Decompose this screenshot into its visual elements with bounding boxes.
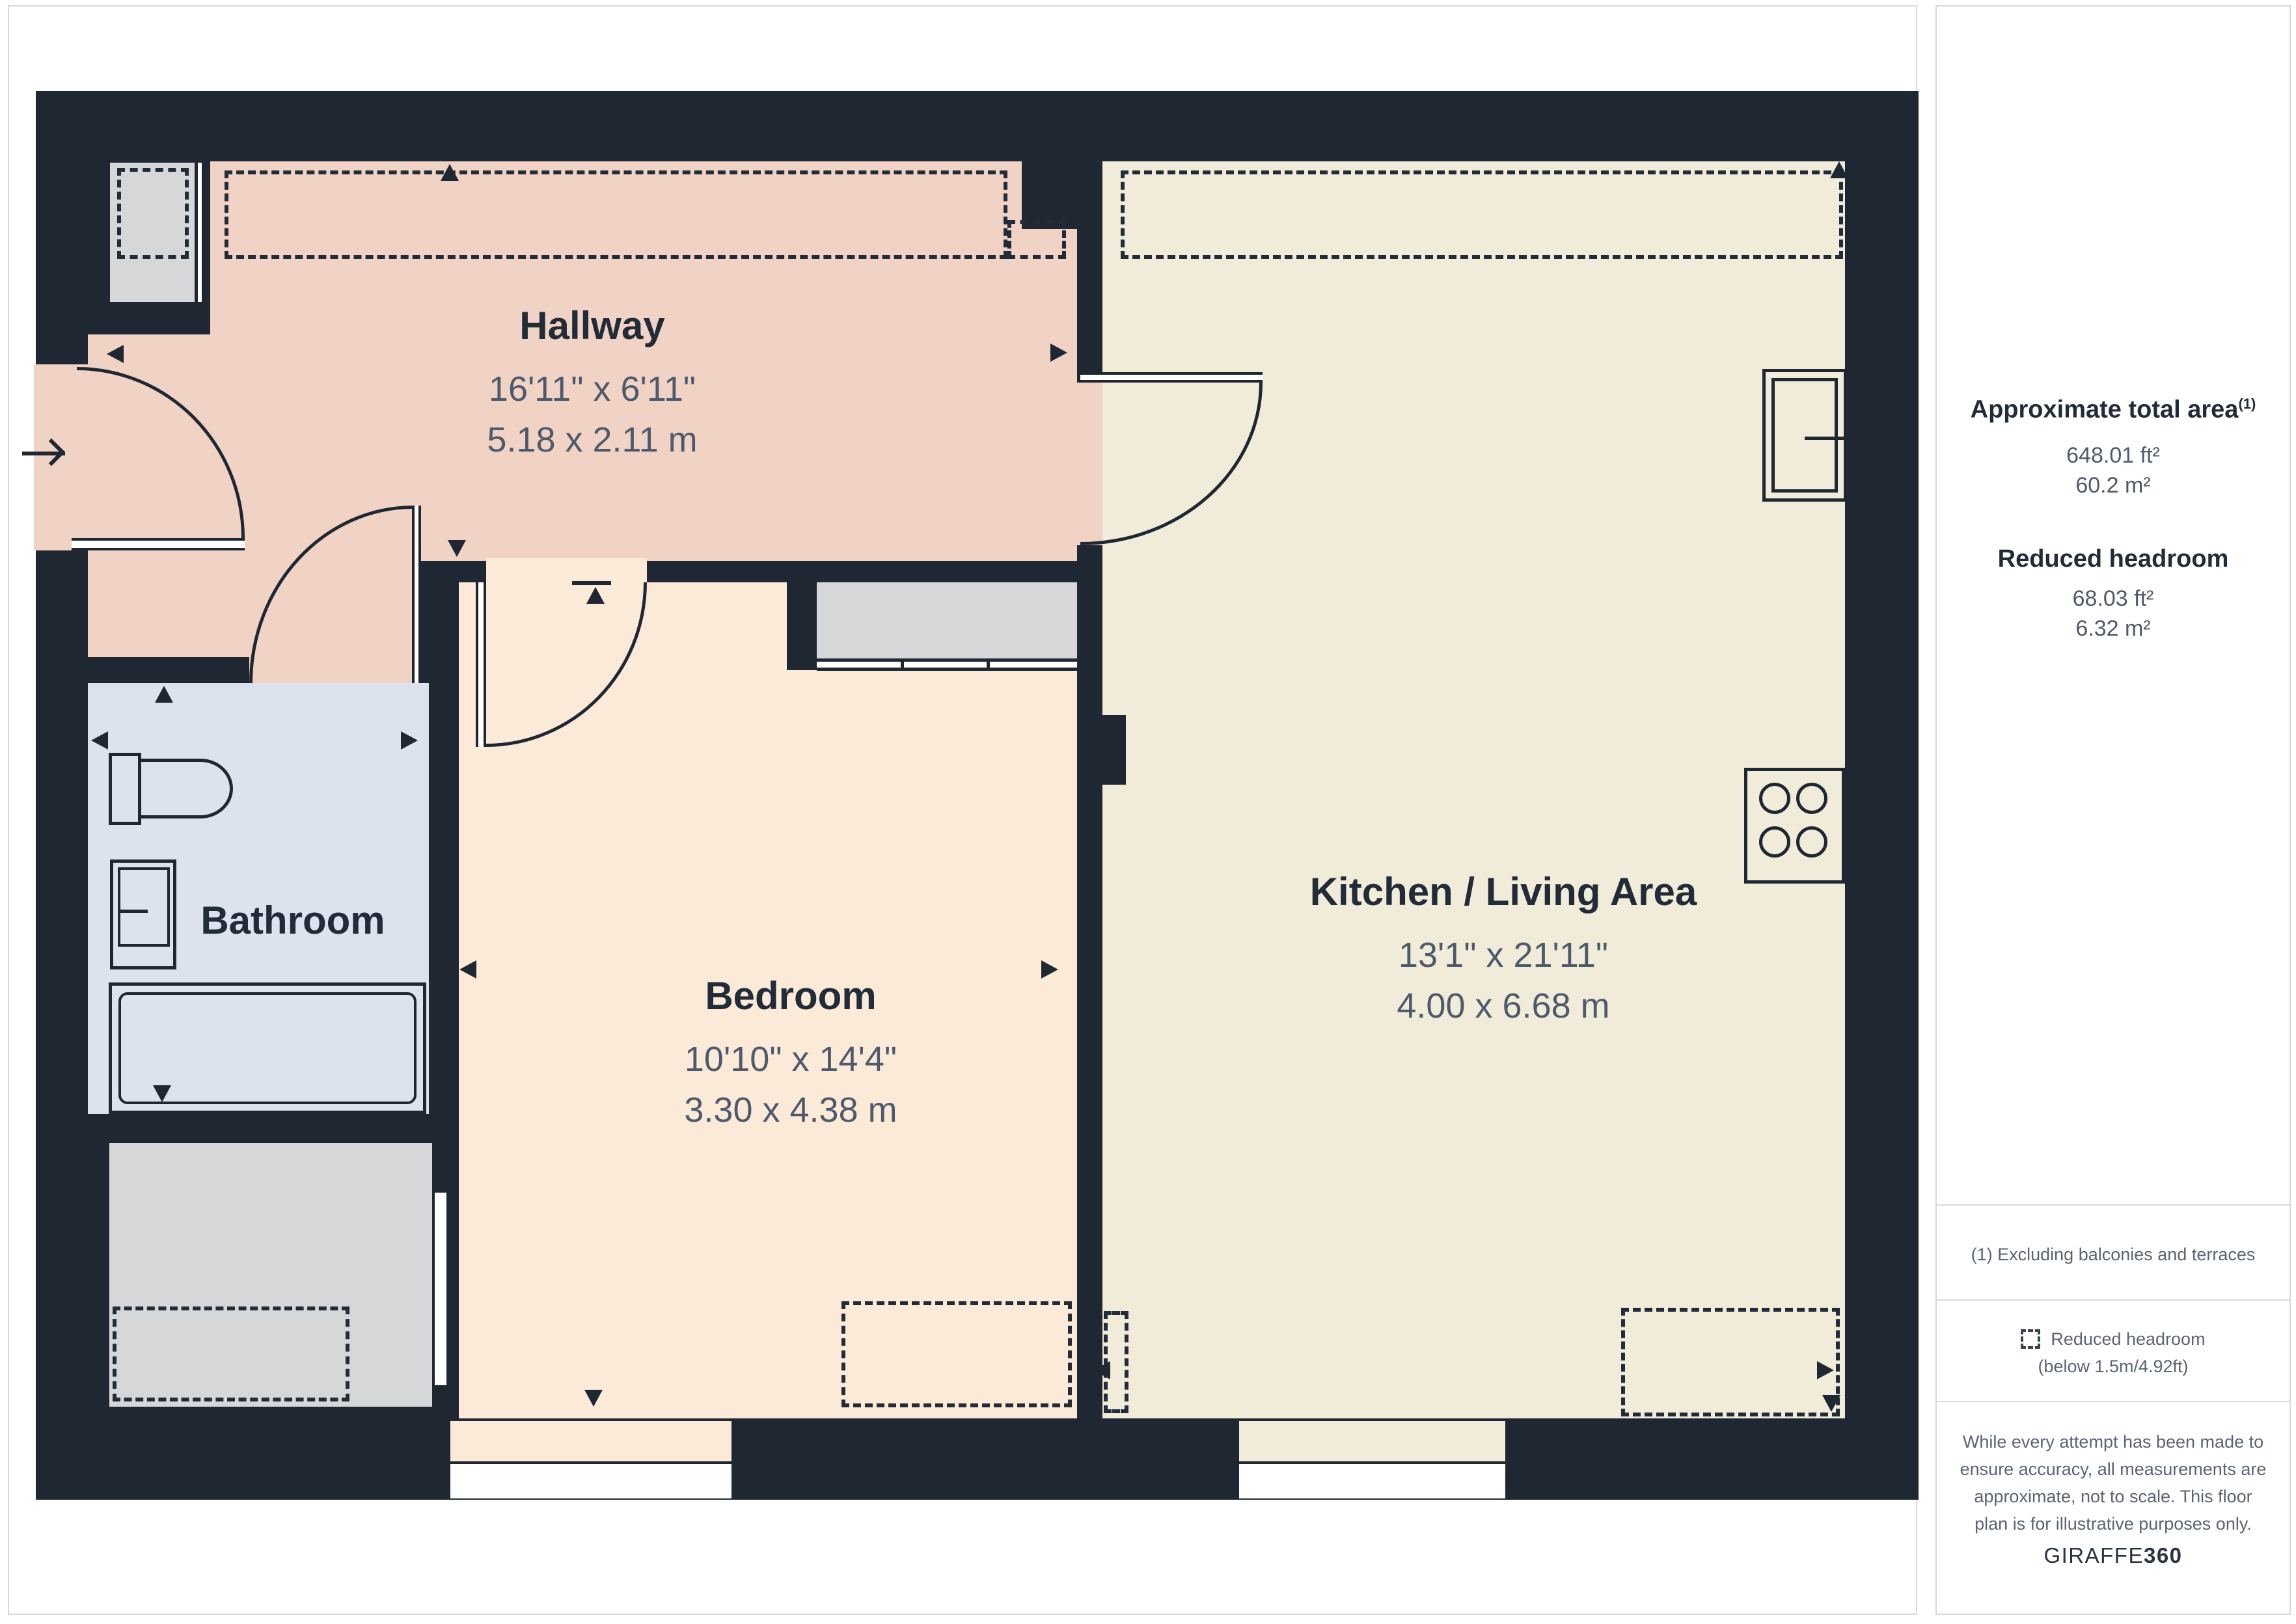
kitchen-dim-arrow-right-icon [1817,1361,1834,1379]
closet-slide-line-bottom [817,668,1077,671]
kitchen-bay-window [1239,1464,1505,1498]
legend-row: Reduced headroom [1935,1326,2291,1352]
storage-door-channel [432,1193,449,1385]
reduced-headroom-legend-icon [2021,1329,2040,1349]
bedroom-door-leaf [476,582,486,747]
bathroom-dim-arrow-up-icon [155,686,173,703]
kitchen-window-unit-inner [1771,378,1838,493]
kitchen-headroom-zone-right [1621,1308,1840,1416]
hallway-dim-arrow-left-icon [107,345,124,363]
bedroom-bay-window [450,1464,731,1498]
hallway-title: Hallway [403,304,781,347]
total-area-value-m: 60.2 m² [1935,472,2291,498]
total-area-footnote-marker: (1) [2238,396,2256,412]
bathroom-dim-arrow-down-icon [153,1085,171,1102]
closet-slide-gap [817,662,1077,668]
bedroom-closet-floor [817,582,1077,658]
sidebar-footnote: (1) Excluding balconies and terraces [1935,1241,2291,1267]
disclaimer-line-4: plan is for illustrative purposes only. [1935,1511,2291,1537]
bathroom-door-leaf [412,506,421,683]
hob-burner-3 [1759,826,1790,858]
bedroom-bay-floor [450,1421,731,1461]
bathroom-label: Bathroom [156,899,430,942]
kitchen-door-leaf [1080,372,1263,383]
hob-burner-1 [1759,783,1790,814]
legend-line1: Reduced headroom [2051,1329,2205,1349]
total-area-title: Approximate total area(1) [1935,396,2291,424]
kitchen-label: Kitchen / Living Area 13'1" x 21'11" 4.0… [1230,871,1777,1032]
giraffe360-logo: GIRAFFE360 [1935,1543,2291,1568]
hallway-headroom-step [1007,220,1066,259]
bedroom-dim-arrow-up-icon [586,587,605,604]
bathroom-dim-arrow-right-icon [401,731,418,750]
toilet-bowl [138,759,233,819]
disclaimer-line-1: While every attempt has been made to [1935,1429,2291,1455]
hob-outline [1744,768,1845,884]
bathroom-dim-arrow-left-icon [91,731,108,750]
total-area-value-ft: 648.01 ft² [1935,442,2291,468]
kitchen-dim-arrow-up-icon [1830,161,1848,178]
hallway-dim-arrow-right-icon [1050,344,1067,362]
closet-door-channel [195,163,204,302]
bedroom-door-opening [486,558,647,582]
kitchen-headroom-zone-top [1121,170,1843,259]
hallway-dim-arrow-up-icon [441,164,459,181]
sink-tap-line [118,910,148,913]
kitchen-bay-floor [1239,1421,1505,1461]
hallway-dims-metric: 5.18 x 2.11 m [403,415,781,466]
kitchen-title: Kitchen / Living Area [1230,871,1777,913]
hob-burner-4 [1796,826,1827,858]
hallway-dims-imperial: 16'11" x 6'11" [403,364,781,415]
bedroom-label: Bedroom 10'10" x 14'4" 3.30 x 4.38 m [605,975,976,1136]
kitchen-floor [1102,161,1845,1418]
entry-door-leaf [72,538,245,550]
kitchen-dims-imperial: 13'1" x 21'11" [1230,930,1777,981]
closet-slide-tick-1 [901,658,904,671]
closet-headroom-zone [117,168,189,259]
closet-dim-arrow-up-icon [83,104,101,121]
closet-dim-arrow-down-icon [83,285,101,302]
hallway-headroom-zone [225,170,1007,259]
bedroom-dim-arrow-right-icon [1041,960,1058,979]
bedroom-closet-stub-wall [787,582,817,670]
bedroom-title: Bedroom [605,975,976,1018]
reduced-headroom-title: Reduced headroom [1935,545,2291,573]
hallway-dim-arrow-down-icon [448,540,466,557]
brand-name: GIRAFFE [2043,1543,2144,1567]
disclaimer-line-3: approximate, not to scale. This floor [1935,1483,2291,1509]
kitchen-window-unit-tick [1805,437,1848,440]
kitchen-wall-jut [1102,715,1126,785]
reduced-headroom-value-m: 6.32 m² [1935,616,2291,642]
kitchen-dim-arrow-down-icon [1822,1395,1840,1412]
reduced-headroom-value-ft: 68.03 ft² [1935,586,2291,612]
brand-suffix: 360 [2144,1543,2183,1567]
hallway-label: Hallway 16'11" x 6'11" 5.18 x 2.11 m [403,304,781,466]
hob-burner-2 [1796,783,1827,814]
storage-headroom-zone [113,1306,349,1401]
bedroom-dim-arrow-left-icon [459,960,476,979]
total-area-title-text: Approximate total area [1971,396,2239,424]
kitchen-dims-metric: 4.00 x 6.68 m [1230,981,1777,1032]
legend-line2: (below 1.5m/4.92ft) [1935,1353,2291,1379]
disclaimer-line-2: ensure accuracy, all measurements are [1935,1456,2291,1482]
bedroom-dims-metric: 3.30 x 4.38 m [605,1085,976,1136]
toilet-tank [109,753,141,825]
bedroom-dim-tick [572,581,611,585]
hallway-corner-pillar [1022,161,1077,229]
closet-slide-tick-2 [987,658,990,671]
bedroom-dim-arrow-down-icon [584,1390,603,1407]
bedroom-dims-imperial: 10'10" x 14'4" [605,1035,976,1085]
kitchen-dim-arrow-left-icon [1093,1361,1110,1379]
bathroom-title: Bathroom [156,899,430,942]
bedroom-headroom-zone [841,1301,1072,1407]
